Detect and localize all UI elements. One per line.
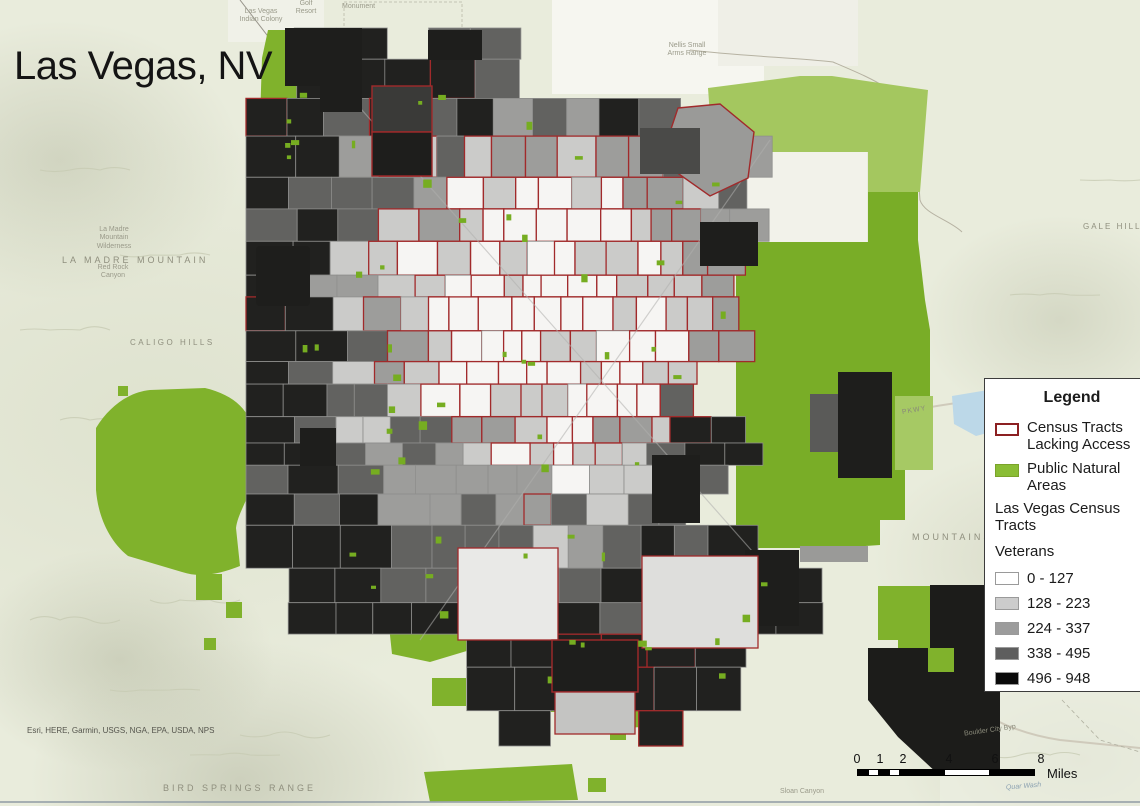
legend-panel: Legend Census Tracts Lacking Access Publ… <box>984 378 1140 692</box>
scale-segment <box>989 769 1035 776</box>
map-canvas[interactable] <box>0 0 1140 806</box>
legend-class-row: 338 - 495 <box>995 641 1140 666</box>
label-mountains: MOUNTAINS <box>912 532 992 542</box>
label-sloan-canyon: Sloan Canyon <box>780 788 824 796</box>
label-red-rock-canyon: Red Rock Canyon <box>96 264 130 281</box>
scale-bar: 012468 Miles <box>857 752 1097 782</box>
class-label: 496 - 948 <box>1027 670 1090 687</box>
label-gale-hills: GALE HILLS <box>1083 222 1140 231</box>
class-swatch <box>995 597 1019 610</box>
class-swatch <box>995 672 1019 685</box>
label-caligo-hills: CALIGO HILLS <box>130 338 215 347</box>
label-las-vegas-indian-colony: Las Vegas Indian Colony <box>235 8 287 25</box>
attribution: Esri, HERE, Garmin, USGS, NGA, EPA, USDA… <box>27 726 214 735</box>
legend-class-row: 224 - 337 <box>995 616 1140 641</box>
scale-bar-segments <box>857 769 1035 776</box>
scale-segment <box>899 769 945 776</box>
label-nellis-small-arms-range: Nellis Small Arms Range <box>664 42 710 59</box>
legend-item-label: Public Natural Areas <box>1027 460 1140 495</box>
legend-field-title: Veterans <box>995 543 1140 560</box>
lacking-access-swatch <box>995 423 1019 436</box>
natural-areas-swatch <box>995 464 1019 477</box>
class-label: 224 - 337 <box>1027 620 1090 637</box>
label-golf-resort: Golf Resort <box>290 0 322 17</box>
scale-tick: 0 <box>854 752 861 766</box>
scale-tick: 6 <box>992 752 999 766</box>
label-la-madre-wilderness: La Madre Mountain Wilderness <box>94 226 134 251</box>
map-frame-bottom-edge <box>0 801 1140 803</box>
class-swatch <box>995 572 1019 585</box>
legend-class-row: 0 - 127 <box>995 566 1140 591</box>
scale-bar-ticks: 012468 <box>857 752 1097 767</box>
scale-tick: 1 <box>877 752 884 766</box>
scale-tick: 4 <box>946 752 953 766</box>
legend-item-label: Census Tracts Lacking Access <box>1027 419 1140 454</box>
legend-class-row: 496 - 948 <box>995 666 1140 691</box>
map-document: Las Vegas, NV LA MADRE MOUNTAIN La Madre… <box>0 0 1140 806</box>
legend-item-lacking-access: Census Tracts Lacking Access <box>995 419 1140 454</box>
page-title: Las Vegas, NV <box>14 44 272 89</box>
label-monument: Monument <box>342 3 375 11</box>
legend-class-row: 128 - 223 <box>995 591 1140 616</box>
scale-bar-unit: Miles <box>1047 766 1077 781</box>
scale-tick: 2 <box>900 752 907 766</box>
scale-tick: 8 <box>1038 752 1045 766</box>
class-label: 0 - 127 <box>1027 570 1074 587</box>
legend-layer-title: Las Vegas Census Tracts <box>995 500 1125 535</box>
class-swatch <box>995 647 1019 660</box>
class-label: 128 - 223 <box>1027 595 1090 612</box>
label-bird-springs-range: BIRD SPRINGS RANGE <box>163 783 316 793</box>
class-swatch <box>995 622 1019 635</box>
legend-title: Legend <box>995 389 1140 407</box>
class-label: 338 - 495 <box>1027 645 1090 662</box>
label-la-madre-mountain: LA MADRE MOUNTAIN <box>62 255 208 265</box>
legend-item-natural-areas: Public Natural Areas <box>995 460 1140 495</box>
veterans-classes: 0 - 127128 - 223224 - 337338 - 495496 - … <box>995 566 1140 691</box>
scale-segment <box>944 769 990 776</box>
